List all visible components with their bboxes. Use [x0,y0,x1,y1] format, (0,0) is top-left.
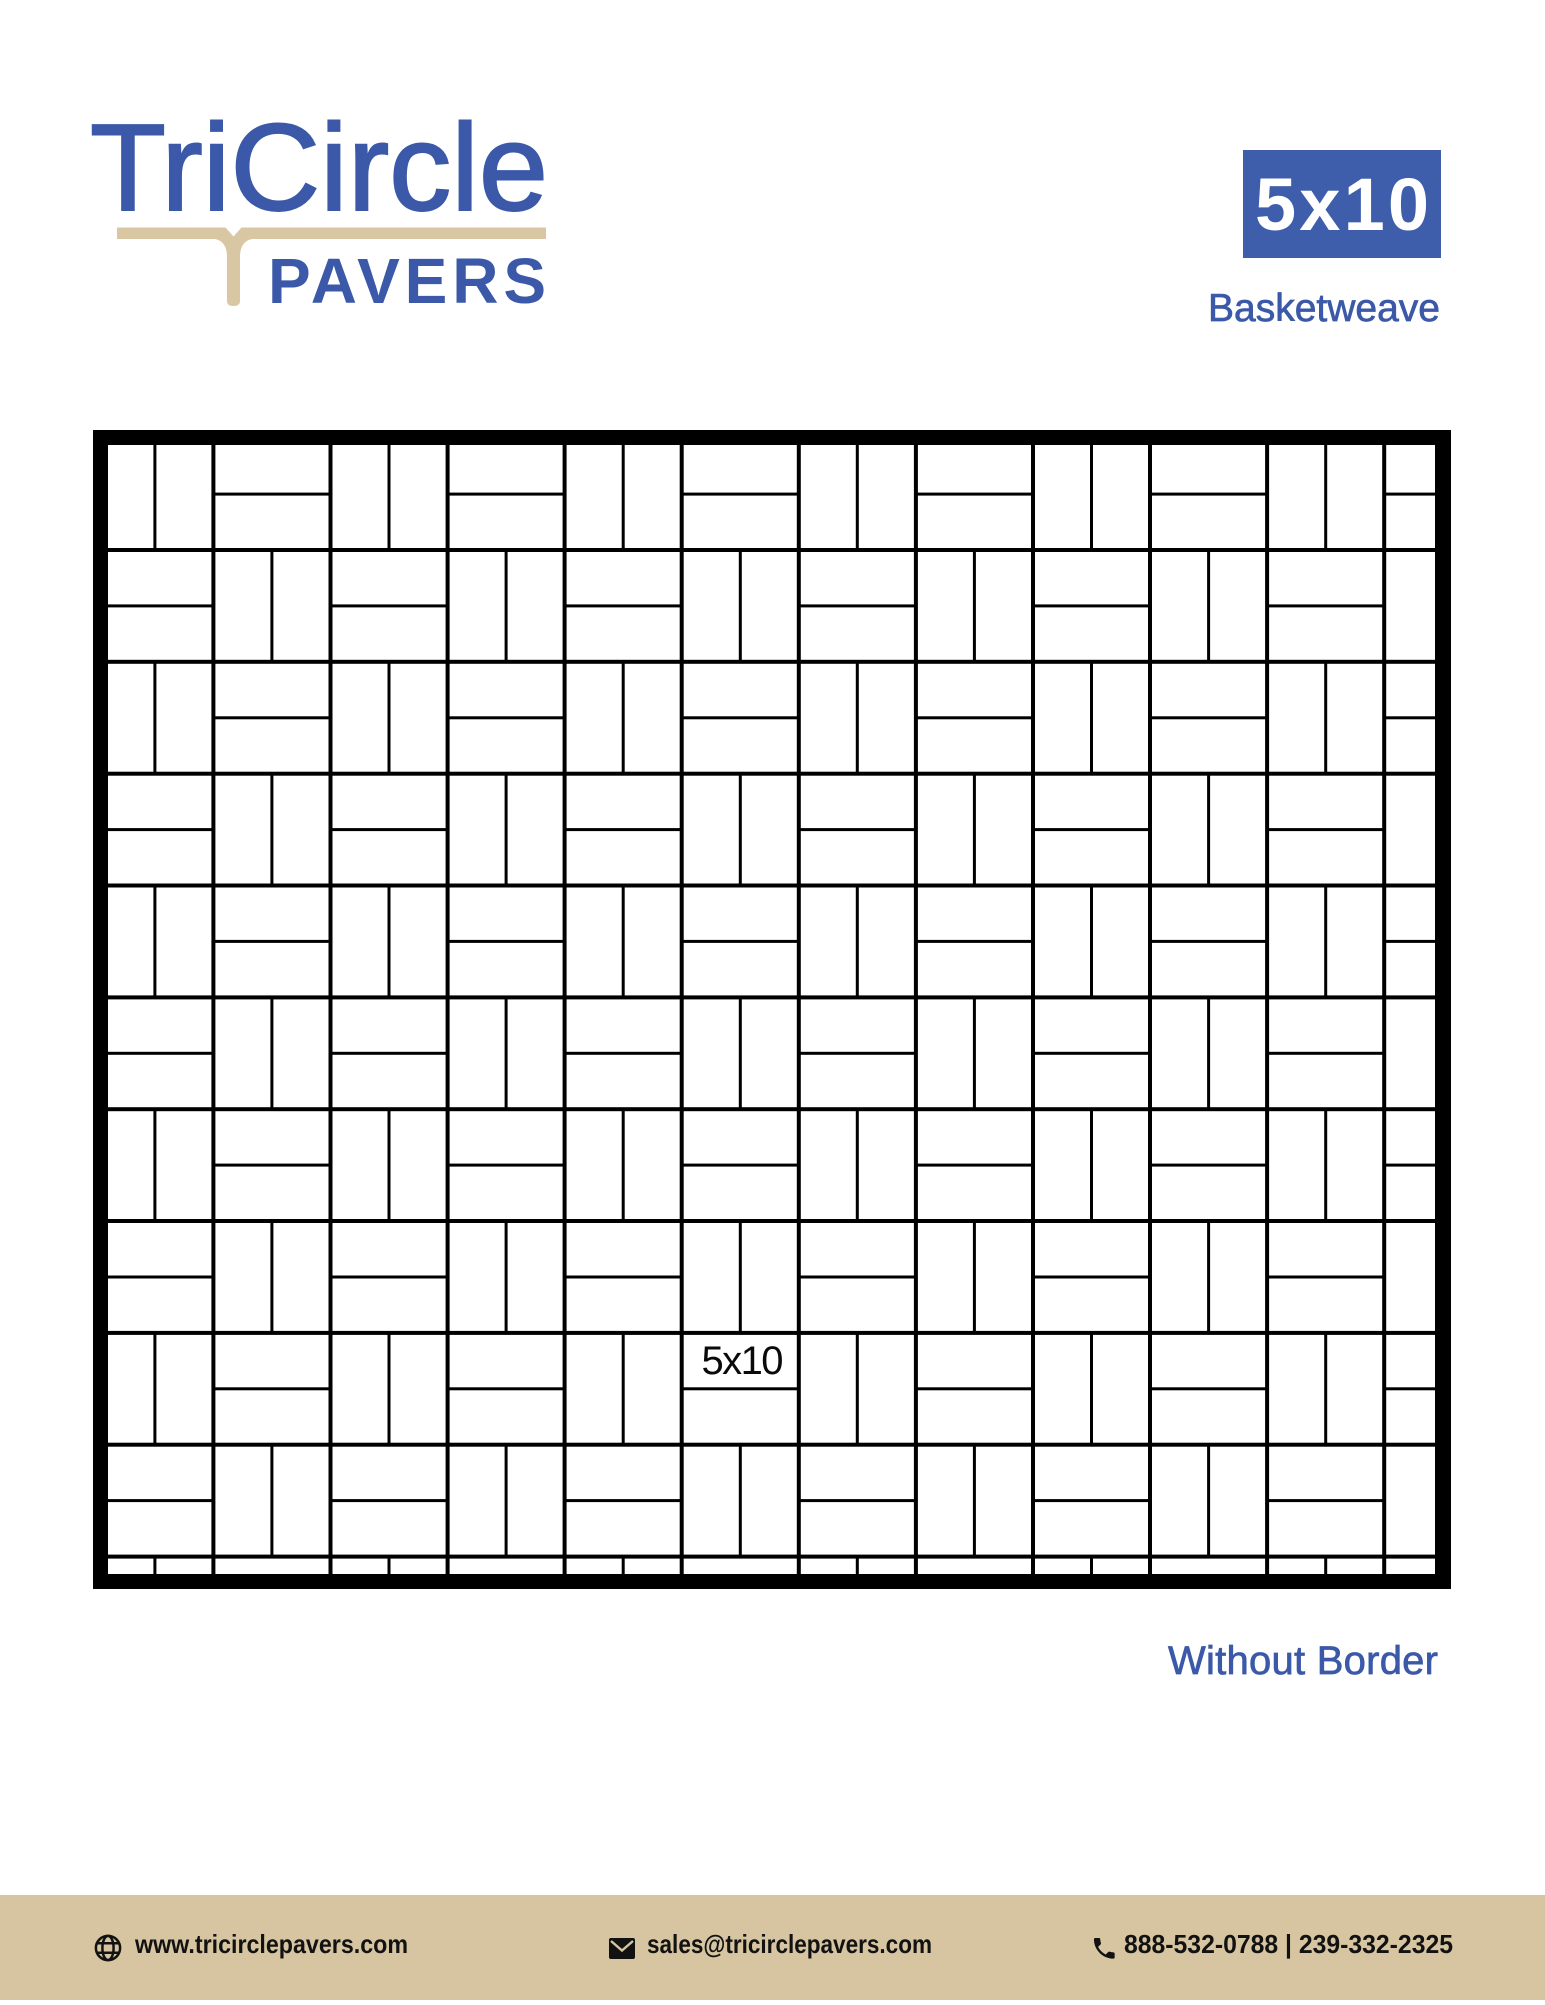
svg-text:www.tricirclepavers.com: www.tricirclepavers.com [134,1929,408,1959]
svg-text:TriCircle: TriCircle [90,100,548,237]
svg-text:5x10: 5x10 [702,1339,784,1383]
svg-text:Basketweave: Basketweave [1208,287,1440,330]
svg-text:sales@tricirclepavers.com: sales@tricirclepavers.com [647,1929,932,1959]
svg-text:Without Border: Without Border [1168,1639,1438,1683]
svg-text:888-532-0788 | 239-332-2325: 888-532-0788 | 239-332-2325 [1124,1929,1453,1959]
